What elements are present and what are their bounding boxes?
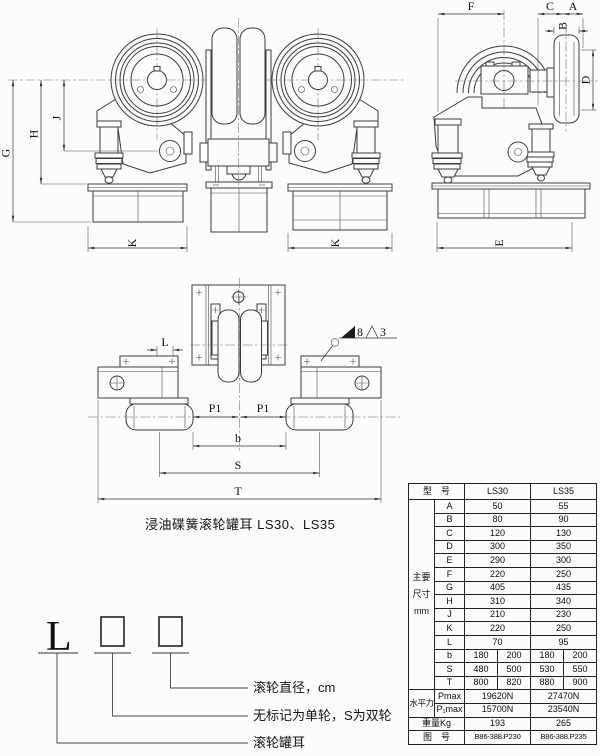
fillet-weld-flag [341,326,355,338]
dim-cell: Pmax [435,690,465,704]
value-cell: 120 [465,527,531,541]
dim-label-H: H [27,129,41,138]
dim-cell: B [435,513,465,527]
value-cell: 550 [564,663,597,677]
spec-row-K: K 220 250 [409,622,597,636]
dim-cell: b [435,649,465,663]
spec-row-p1max: P₁max 15700N 23540N [409,703,597,717]
dim-label-B: B [556,22,570,30]
value-cell: 50 [465,500,531,514]
drawing-no-label-cell: 图 号 [409,731,465,745]
value-cell: 23540N [531,703,597,717]
designation-label-wheel-type: 无标记为单轮，S为双轮 [253,708,392,723]
dim-cell: J [435,608,465,622]
designation-leader-lines [57,653,248,743]
value-cell: 95 [531,635,597,649]
value-cell: B86-388.P235 [531,731,597,745]
designation-label-diameter: 滚轮直径，cm [253,680,335,695]
dim-label-D: D [579,75,593,84]
value-cell: 200 [564,649,597,663]
spec-row-C: C 120 130 [409,527,597,541]
value-cell: 250 [531,622,597,636]
spec-table: 型 号 LS30 LS35 主要尺寸mm A 50 55 B 80 90 C 1… [408,483,597,745]
value-cell: 405 [465,581,531,595]
dim-cell: L [435,635,465,649]
dims-group-cell: 主要尺寸mm [409,500,435,690]
dim-cell: S [435,663,465,677]
dim-cell: C [435,527,465,541]
value-cell: 290 [465,554,531,568]
value-cell: 180 [465,649,498,663]
value-cell: 180 [531,649,564,663]
value-cell: 800 [465,676,498,690]
spec-header-row: 型 号 LS30 LS35 [409,484,597,500]
value-cell: 500 [498,663,531,677]
dim-label-S: S [235,458,242,472]
force-group-cell: 水平力 [409,690,435,717]
spec-row-b: b 180 200 180 200 [409,649,597,663]
spec-row-L: L 70 95 [409,635,597,649]
dim-label-F: F [468,0,475,13]
dim-label-K-left: K [125,238,139,247]
dim-label-L: L [161,335,168,349]
dim-cell: P₁max [435,703,465,717]
side-view-with-wheel-profile [432,10,598,218]
dim-cell: F [435,567,465,581]
spec-row-A: 主要尺寸mm A 50 55 [409,500,597,514]
value-cell: 300 [531,554,597,568]
designation-box-2 [159,617,182,646]
side-view-left [8,28,212,222]
value-cell: 480 [465,663,498,677]
plan-right-roller-unit [286,356,381,430]
datasheet-page: G H J K [0,0,600,756]
weld-finish-label: 3 [380,325,386,339]
dim-cell: H [435,595,465,609]
value-cell: 530 [531,663,564,677]
spec-row-B: B 80 90 [409,513,597,527]
value-cell: 130 [531,527,597,541]
value-cell: 250 [531,567,597,581]
dim-label-P1-right: P1 [257,401,270,415]
spec-row-H: H 310 340 [409,595,597,609]
top-views-drawing: G H J K [0,0,600,260]
side-view-right: K [266,28,404,252]
dim-label-C: C [546,0,554,13]
dim-label-K-mid: K [328,238,342,247]
value-cell: 19620N [465,690,531,704]
dim-label-G: G [0,148,13,157]
dim-label-b: b [235,431,241,445]
dim-label-J: J [50,115,64,120]
dim-label-P1-left: P1 [209,401,222,415]
spec-row-F: F 220 250 [409,567,597,581]
spec-row-T: T 800 820 880 900 [409,676,597,690]
plan-left-roller-unit [98,356,193,430]
figure-caption: 浸油碟簧滚轮罐耳 LS30、LS35 [145,514,335,533]
value-cell: 350 [531,540,597,554]
designation-box-1 [101,617,124,646]
dim-label-E: E [492,239,506,246]
dim-cell: T [435,676,465,690]
value-cell: 210 [465,608,531,622]
weight-label-cell: 重量Kg [409,717,465,731]
value-cell: 200 [498,649,531,663]
spec-row-S: S 480 500 530 550 [409,663,597,677]
value-cell: 265 [531,717,597,731]
dim-cell: A [435,500,465,514]
value-cell: 900 [564,676,597,690]
spec-row-E: E 290 300 [409,554,597,568]
value-cell: 55 [531,500,597,514]
value-cell: 15700N [465,703,531,717]
value-cell: 193 [465,717,531,731]
model-ls35-cell: LS35 [531,484,597,500]
value-cell: 300 [465,540,531,554]
value-cell: 340 [531,595,597,609]
spec-row-pmax: 水平力 Pmax 19620N 27470N [409,690,597,704]
value-cell: 435 [531,581,597,595]
value-cell: 820 [498,676,531,690]
plan-center-assembly [190,278,288,452]
dim-cell: K [435,622,465,636]
weld-size-label: 8 [357,325,363,339]
value-cell: 220 [465,622,531,636]
dim-label-T: T [234,484,242,498]
value-cell: B86-388.P230 [465,731,531,745]
value-cell: 230 [531,608,597,622]
dim-cell: G [435,581,465,595]
plan-view-drawing: L P1 P1 b S T 8 3 [0,260,600,510]
dim-label-A: A [569,0,578,13]
model-header-cell: 型 号 [409,484,465,500]
value-cell: 220 [465,567,531,581]
designation-label-roller-cage-shoe: 滚轮罐耳 [253,735,305,750]
spec-row-G: G 405 435 [409,581,597,595]
dim-cell: E [435,554,465,568]
value-cell: 880 [531,676,564,690]
value-cell: 90 [531,513,597,527]
value-cell: 27470N [531,690,597,704]
value-cell: 70 [465,635,531,649]
spec-row-D: D 300 350 [409,540,597,554]
front-view-double-wheel [200,18,277,232]
spec-row-drawing-no: 图 号 B86-388.P230 B86-388.P235 [409,731,597,745]
value-cell: 80 [465,513,531,527]
value-cell: 310 [465,595,531,609]
dim-cell: D [435,540,465,554]
model-ls30-cell: LS30 [465,484,531,500]
spec-row-J: J 210 230 [409,608,597,622]
spec-row-weight: 重量Kg 193 265 [409,717,597,731]
